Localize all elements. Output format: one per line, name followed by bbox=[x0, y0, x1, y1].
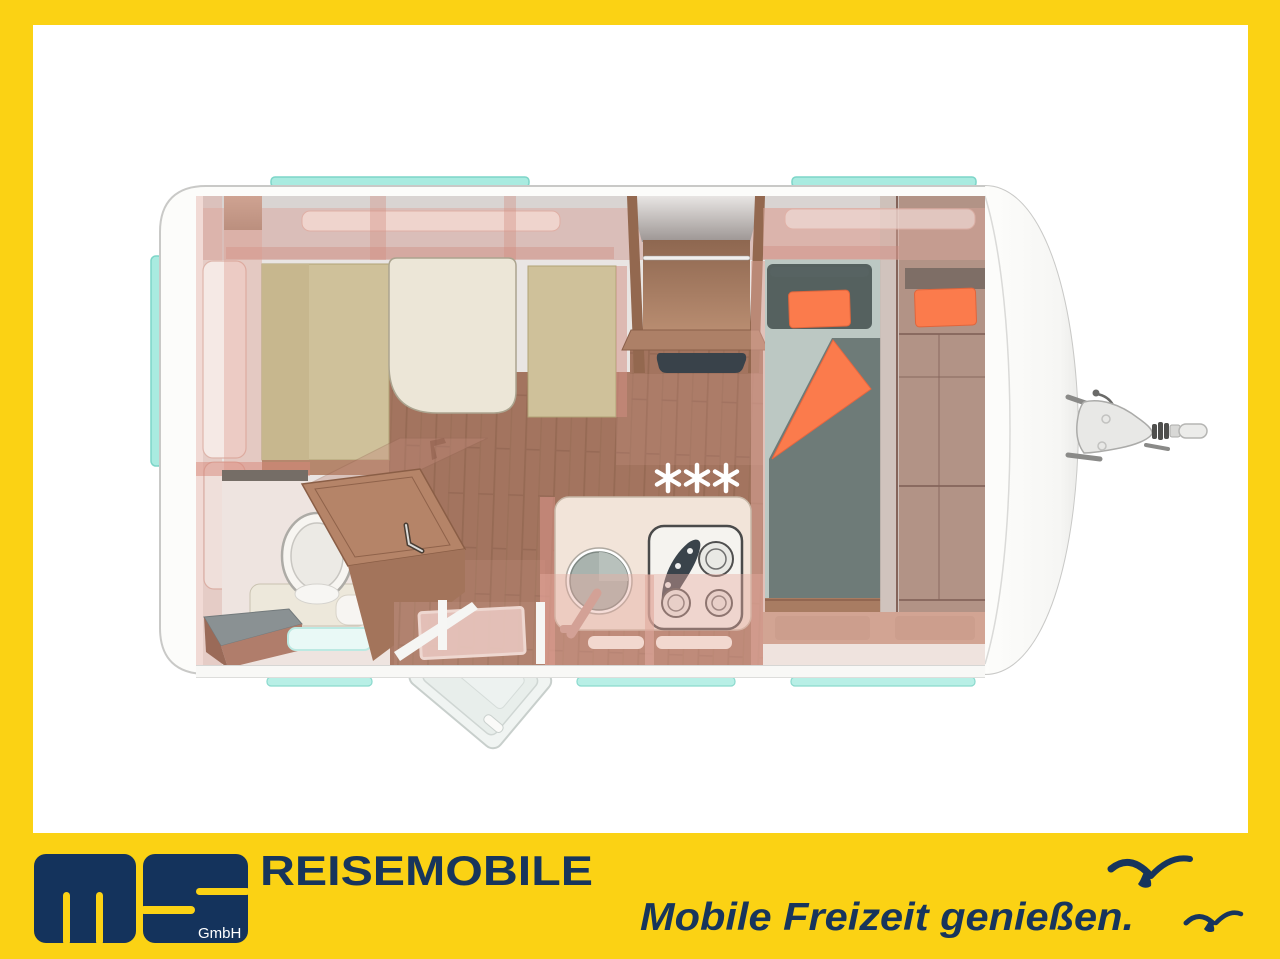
svg-text:GmbH: GmbH bbox=[198, 925, 241, 942]
svg-text:REISEMOBILE: REISEMOBILE bbox=[260, 847, 593, 894]
svg-text:Mobile Freizeit genießen.: Mobile Freizeit genießen. bbox=[640, 896, 1134, 939]
